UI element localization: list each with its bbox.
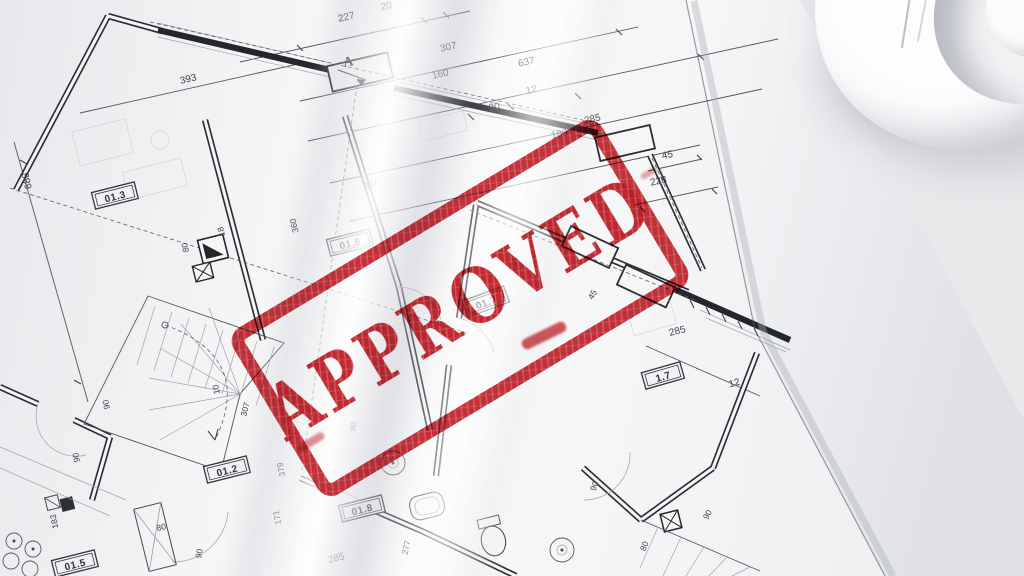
dimension-label: 20: [380, 0, 394, 13]
dimension-label: 160: [431, 67, 450, 82]
dimension-label: 360: [288, 217, 301, 233]
dimension-label: 379: [275, 461, 288, 477]
dimension-label: 307: [239, 401, 252, 417]
wall-pier: [327, 52, 393, 91]
blueprint-photo-scene: A 227 20 307 160 637 90 12 285 180 45 22…: [0, 0, 1024, 576]
dimension-label: 637: [517, 55, 536, 69]
dimension-label: 10: [210, 384, 222, 395]
dimension-label: 688: [20, 171, 35, 190]
room-label: 01.3: [91, 182, 138, 209]
room-label: 01.2: [203, 456, 250, 483]
toilet: [476, 515, 509, 559]
staircase-lower: [640, 520, 760, 576]
dimension-label: 90: [701, 508, 714, 521]
dimension-label: 171: [271, 509, 284, 525]
dimension-label: 277: [400, 539, 413, 555]
sink: [408, 490, 447, 522]
dimension-label: 307: [439, 40, 458, 55]
dimension-label: 90: [100, 399, 112, 411]
dimension-label: 90: [193, 548, 205, 559]
dimension-label: 393: [179, 72, 198, 87]
dimension-label: 80: [638, 540, 651, 553]
room-label: 1.7: [641, 362, 684, 389]
dimension-label: 285: [668, 324, 687, 339]
dimension-label: 183: [48, 513, 61, 529]
dimension-label: 80: [179, 242, 191, 254]
room-label: 01.8: [338, 495, 385, 522]
appliance: [45, 491, 76, 515]
dimension-label: 90: [488, 101, 502, 114]
stove-burners: [3, 533, 41, 576]
dimension-label: 227: [337, 10, 356, 25]
room-label: 01.5: [51, 550, 98, 576]
dimension-label: 18: [215, 226, 227, 238]
dimension-label: 12: [728, 377, 742, 390]
dimension-label: 90: [70, 452, 82, 464]
dimension-label: 285: [327, 551, 346, 566]
dimension-label: 12: [525, 84, 539, 97]
